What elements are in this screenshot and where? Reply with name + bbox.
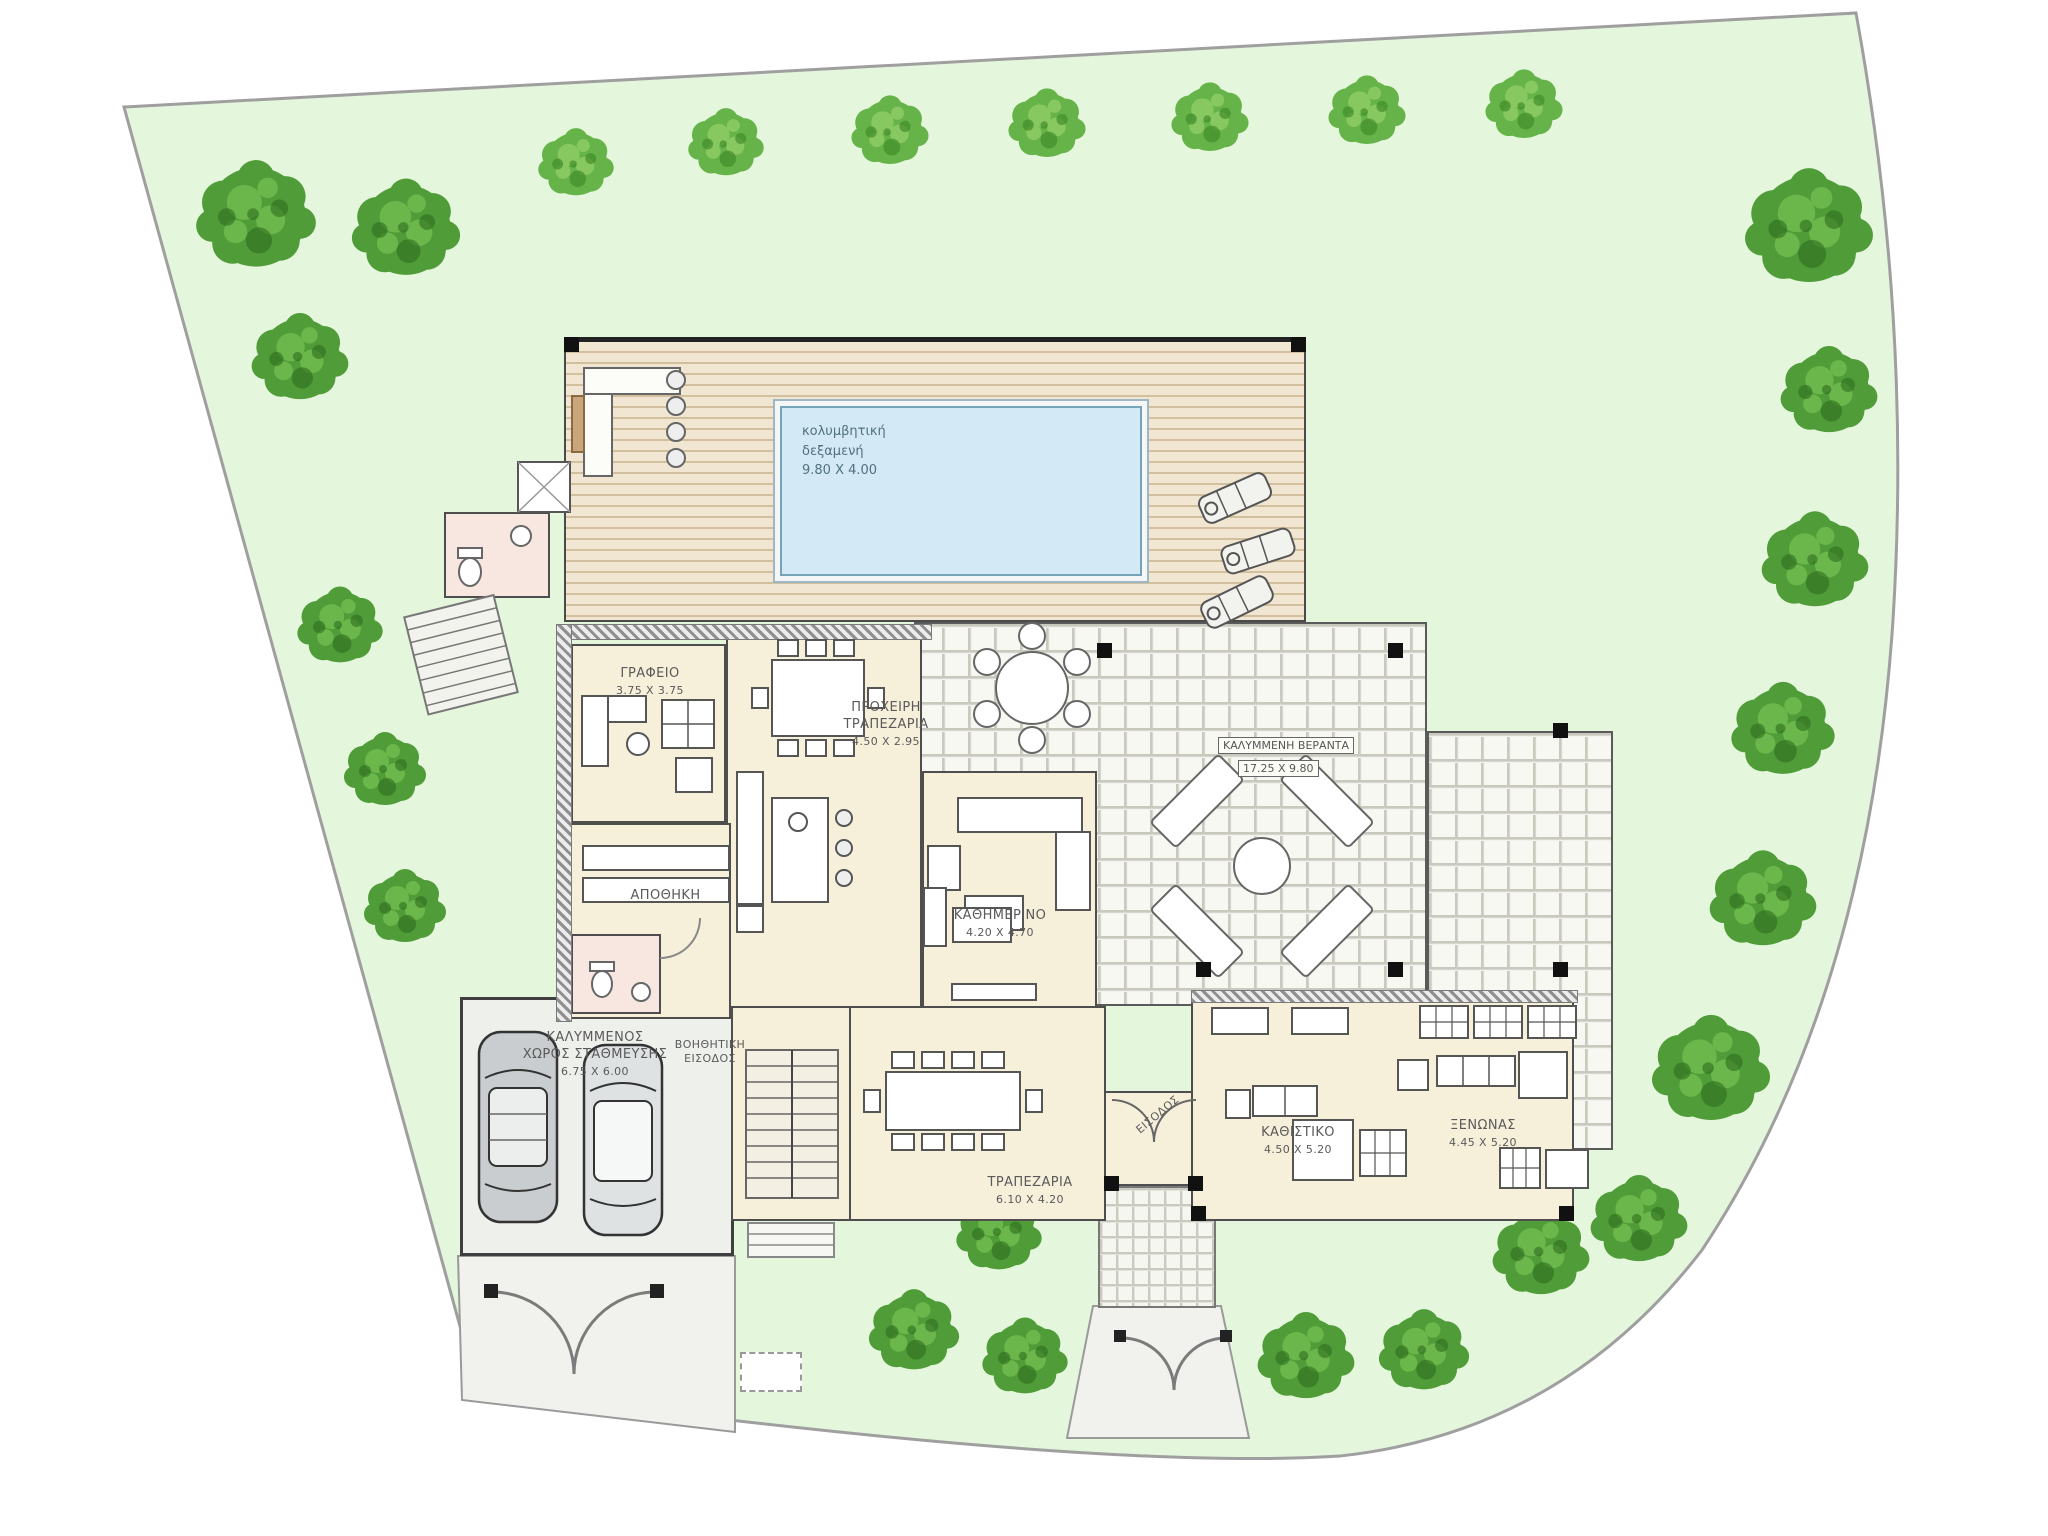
column xyxy=(564,337,579,352)
staircase xyxy=(746,1050,838,1257)
column xyxy=(1196,962,1211,977)
column xyxy=(1191,1206,1206,1221)
furniture-layer xyxy=(0,0,2048,1536)
column xyxy=(1553,962,1568,977)
label-sitting: ΚΑΘΙΣΤΙΚΟ4.50 X 5.20 xyxy=(1238,1125,1358,1159)
dining-table-set xyxy=(864,1052,1042,1150)
right-wing-furniture xyxy=(1212,1006,1588,1188)
column xyxy=(1097,643,1112,658)
column xyxy=(1388,962,1403,977)
label-dining: ΤΡΑΠΕΖΑΡΙΑ6.10 X 4.20 xyxy=(975,1175,1085,1209)
label-pool: κολυμβητική δεξαμενή 9.80 X 4.00 xyxy=(802,422,886,481)
outdoor-wc-fixtures xyxy=(458,526,531,586)
column xyxy=(1388,643,1403,658)
column xyxy=(1291,337,1306,352)
deck-bar xyxy=(572,368,685,476)
column xyxy=(1104,1176,1119,1191)
office-furniture xyxy=(582,696,714,792)
column xyxy=(1553,723,1568,738)
label-family-room: ΚΑΘΗΜΕΡΙΝΟ4.20 X 4.70 xyxy=(935,908,1065,942)
wc-fixtures xyxy=(590,962,650,1001)
veranda-lounge-set xyxy=(1150,754,1373,977)
label-aux-entrance: ΒΟΗΘΗΤΙΚΗ ΕΙΣΟΔΟΣ xyxy=(655,1038,765,1067)
skylight-shaft xyxy=(518,462,570,512)
kitchen-counters xyxy=(737,772,852,932)
site-plan-canvas: κολυμβητική δεξαμενή 9.80 X 4.00 ΓΡΑΦΕΙΟ… xyxy=(0,0,2048,1536)
grid-cabinets xyxy=(1420,1006,1576,1038)
veranda-dining-set xyxy=(974,623,1090,753)
label-veranda-dims: 17.25 X 9.80 xyxy=(1238,760,1319,777)
column xyxy=(1188,1176,1203,1191)
label-informal-dining: ΠΡΟΧΕΙΡΗ ΤΡΑΠΕΖΑΡΙΑ 4.50 X 2.95 xyxy=(828,700,944,751)
label-guest: ΞΕΝΩΝΑΣ4.45 X 5.20 xyxy=(1423,1118,1543,1152)
column xyxy=(1559,1206,1574,1221)
exterior-stairs-nw xyxy=(404,595,517,714)
family-room-furniture xyxy=(924,798,1090,1000)
sun-loungers xyxy=(1196,471,1296,631)
label-storage: ΑΠΟΘΗΚΗ xyxy=(608,888,723,905)
label-office: ΓΡΑΦΕΙΟ3.75 X 3.75 xyxy=(585,666,715,700)
label-veranda-name: ΚΑΛΥΜΜΕΝΗ ΒΕΡΑΝΤΑ xyxy=(1218,737,1354,754)
